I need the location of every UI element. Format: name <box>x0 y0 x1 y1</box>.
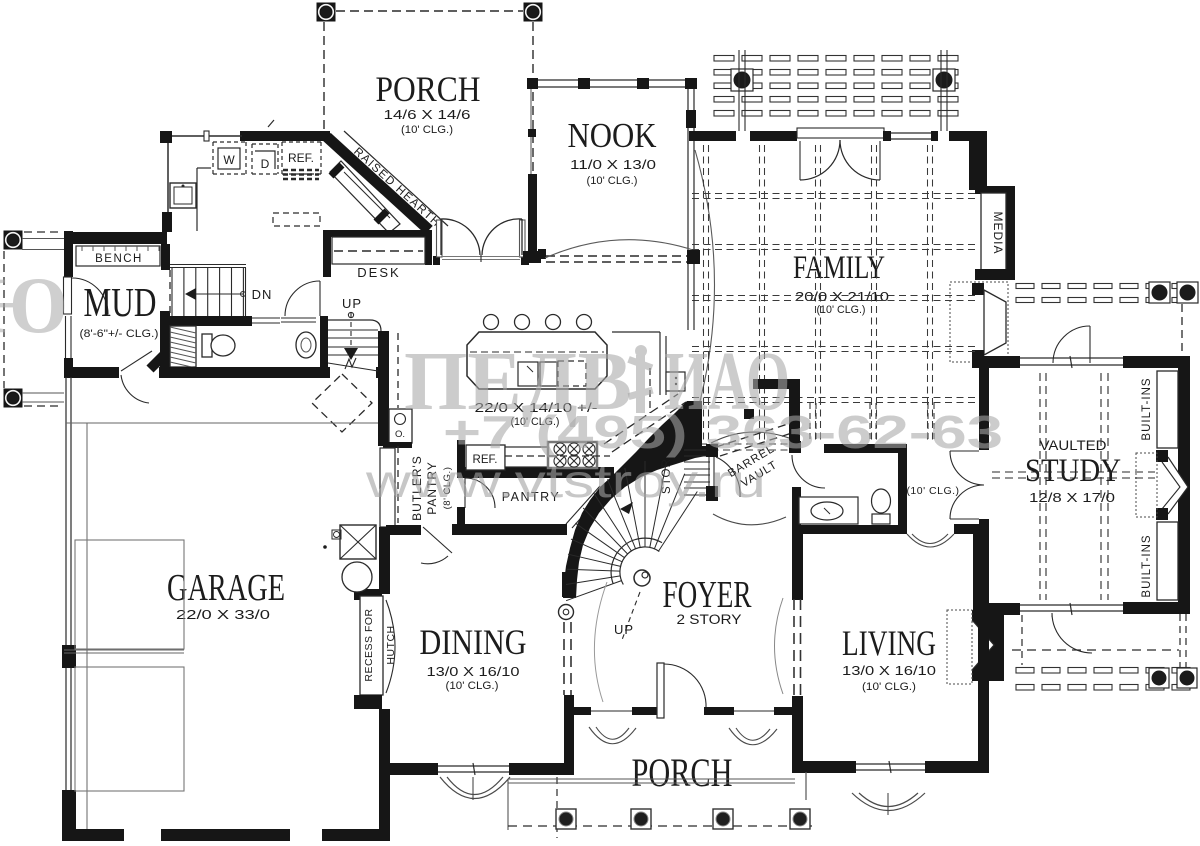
svg-text:+7 (495) 363-62-63: +7 (495) 363-62-63 <box>443 406 1003 458</box>
svg-text:W: W <box>223 153 235 167</box>
svg-text:NOOK: NOOK <box>568 116 657 155</box>
svg-text:BUILT-INS: BUILT-INS <box>1141 377 1153 440</box>
svg-text:2 STORY: 2 STORY <box>677 612 742 627</box>
svg-text:RECESS FOR: RECESS FOR <box>363 608 375 681</box>
svg-text:(10' CLG.): (10' CLG.) <box>906 485 959 497</box>
svg-text:12/8 X 17/0: 12/8 X 17/0 <box>1029 490 1115 505</box>
svg-text:(8'-6"+/- CLG.): (8'-6"+/- CLG.) <box>80 328 159 340</box>
svg-text:MEDIA: MEDIA <box>991 211 1005 254</box>
svg-text:DINING: DINING <box>420 622 527 662</box>
svg-text:DESK: DESK <box>357 265 400 280</box>
svg-text:20/0 X 21/10: 20/0 X 21/10 <box>795 289 889 304</box>
svg-text:(10' CLG.): (10' CLG.) <box>446 680 499 692</box>
svg-text:PORCH: PORCH <box>632 750 733 795</box>
svg-text:O.: O. <box>395 429 405 440</box>
svg-text:STUDY: STUDY <box>1025 453 1121 489</box>
svg-text:FOYER: FOYER <box>663 574 752 616</box>
svg-text:REF.: REF. <box>288 151 314 165</box>
svg-text:(10' CLG.): (10' CLG.) <box>587 175 638 187</box>
svg-text:14/6 X 14/6: 14/6 X 14/6 <box>384 107 471 122</box>
svg-text:DN: DN <box>252 287 273 302</box>
svg-text:BUILT-INS: BUILT-INS <box>1141 534 1153 597</box>
svg-text:www.vtstroy.ru: www.vtstroy.ru <box>365 455 766 507</box>
svg-text:MUD: MUD <box>84 279 157 325</box>
svg-text:Ю: Ю <box>0 262 68 350</box>
svg-text:(10' CLG.): (10' CLG.) <box>817 304 866 316</box>
svg-text:GARAGE: GARAGE <box>167 567 285 609</box>
svg-text:BENCH: BENCH <box>95 253 143 265</box>
svg-text:(10' CLG.): (10' CLG.) <box>401 124 453 136</box>
svg-text:PORCH: PORCH <box>376 69 481 109</box>
svg-text:UP: UP <box>342 296 362 311</box>
svg-text:22/0 X 33/0: 22/0 X 33/0 <box>176 607 270 622</box>
svg-text:13/0 X 16/10: 13/0 X 16/10 <box>427 664 520 679</box>
svg-text:UP: UP <box>614 622 634 637</box>
svg-text:VAULTED: VAULTED <box>1040 438 1107 453</box>
svg-text:13/0 X 16/10: 13/0 X 16/10 <box>842 663 936 678</box>
svg-text:11/0 X 13/0: 11/0 X 13/0 <box>570 157 656 172</box>
svg-text:(10' CLG.): (10' CLG.) <box>862 681 916 693</box>
svg-text:D: D <box>261 157 270 171</box>
svg-text:LIVING: LIVING <box>842 623 936 663</box>
